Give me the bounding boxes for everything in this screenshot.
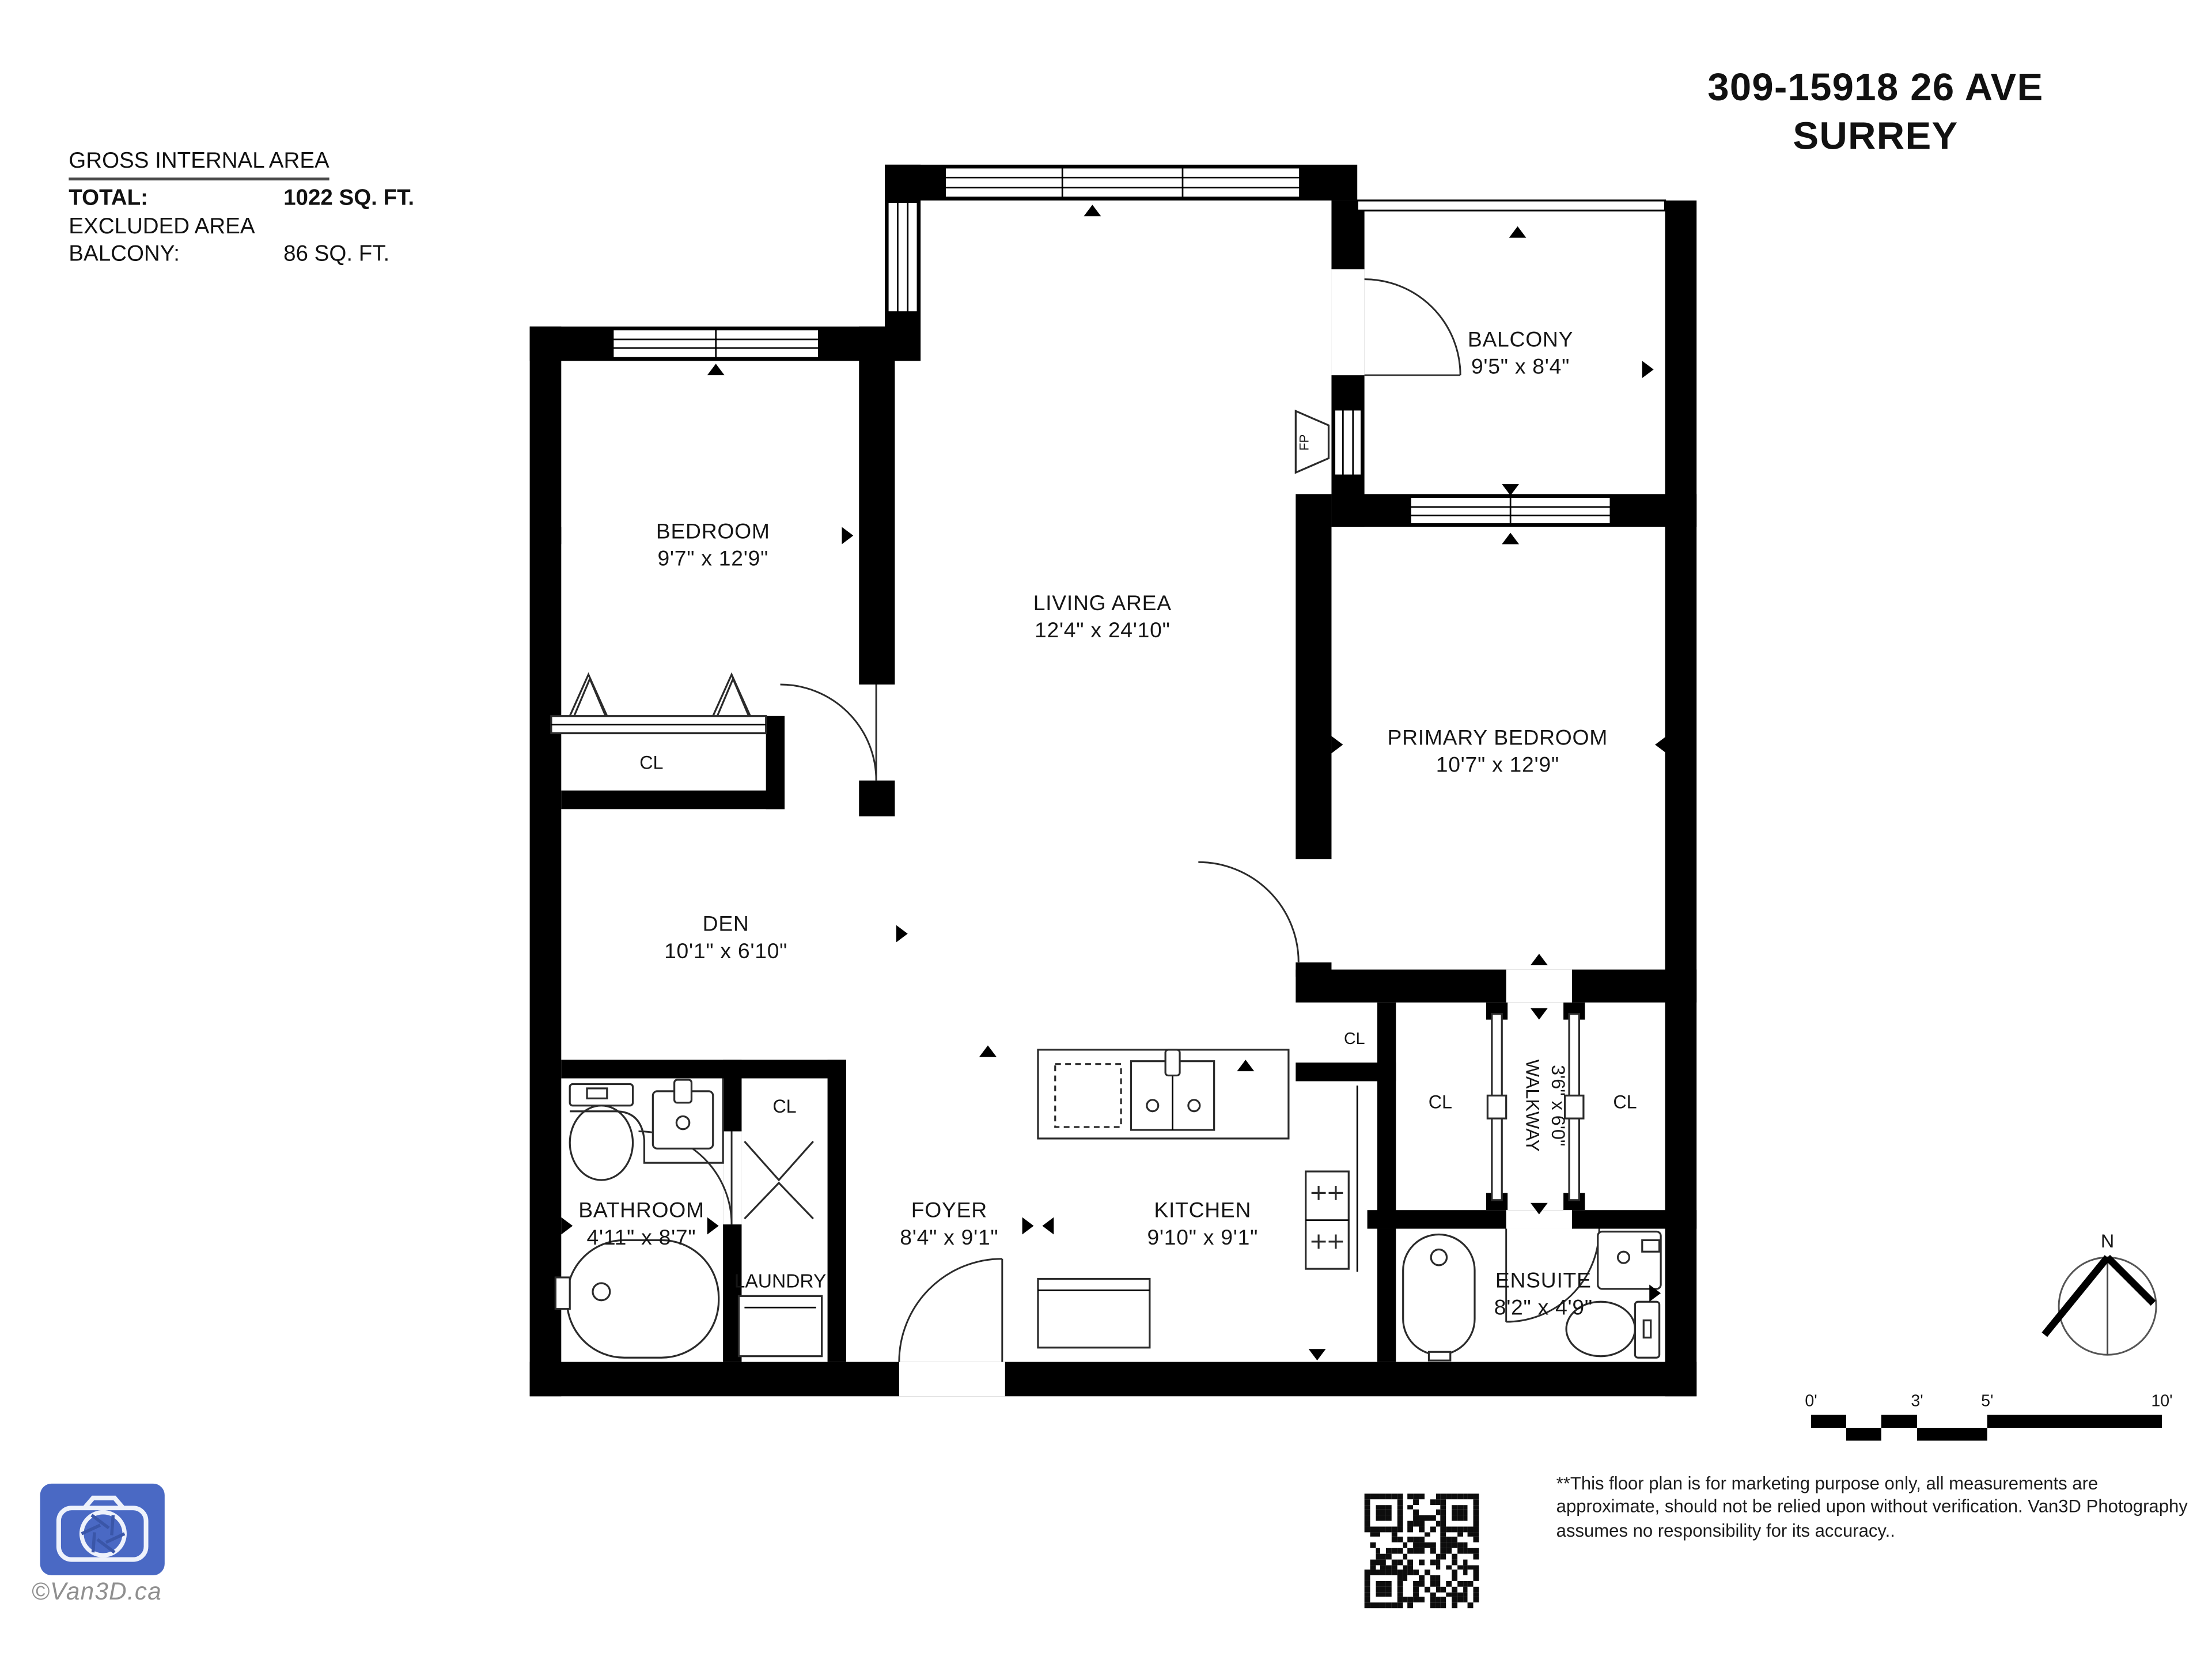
ensuite-sink — [1598, 1231, 1661, 1288]
closet-hangers — [570, 675, 750, 716]
label-living: LIVING AREA — [1033, 591, 1172, 615]
label-primary: PRIMARY BEDROOM — [1388, 725, 1608, 749]
qr-code — [1365, 1493, 1479, 1608]
area-row-balcony: BALCONY: 86 SQ. FT. — [69, 241, 414, 269]
area-summary: GROSS INTERNAL AREA TOTAL: 1022 SQ. FT. … — [69, 149, 414, 269]
area-heading: GROSS INTERNAL AREA — [69, 149, 329, 180]
scale-label-10: 10' — [2151, 1392, 2172, 1411]
label-closet-right: CL — [1613, 1092, 1637, 1113]
label-fireplace: FP — [1297, 434, 1312, 451]
area-row-total: TOTAL: 1022 SQ. FT. — [69, 185, 414, 213]
label-closet-foyer: CL — [772, 1096, 796, 1117]
page-title: 309-15918 26 AVE SURREY — [1632, 63, 2119, 160]
camera-icon — [40, 1484, 165, 1575]
scale-label-0: 0' — [1805, 1392, 1817, 1411]
compass-north-label: N — [2101, 1231, 2114, 1251]
label-closet-left: CL — [1429, 1092, 1452, 1113]
label-den-dims: 10'1" x 6'10" — [664, 939, 787, 963]
washer — [738, 1296, 821, 1356]
label-bathroom: BATHROOM — [578, 1198, 704, 1222]
area-balcony-value: 86 SQ. FT. — [283, 241, 389, 269]
watermark: ©Van3D.ca — [32, 1578, 162, 1607]
label-bedroom: BEDROOM — [656, 519, 770, 543]
scale-label-5: 5' — [1981, 1392, 1993, 1411]
label-kitchen-dims: 9'10" x 9'1" — [1147, 1225, 1258, 1249]
van3d-logo — [40, 1484, 165, 1575]
area-balcony-label: BALCONY: — [69, 241, 283, 269]
ensuite-tub — [1403, 1234, 1475, 1360]
label-bedroom-dims: 9'7" x 12'9" — [657, 546, 768, 570]
kitchen-island — [1038, 1050, 1289, 1139]
doors — [551, 279, 1599, 1362]
label-walkway: WALKWAY — [1522, 1060, 1543, 1152]
label-primary-dims: 10'7" x 12'9" — [1436, 753, 1559, 777]
address-line: 309-15918 26 AVE — [1632, 63, 2119, 112]
scale-label-3: 3' — [1911, 1392, 1923, 1411]
label-closet-small: CL — [1344, 1030, 1365, 1048]
label-laundry: LAUNDRY — [734, 1270, 827, 1292]
label-closet-bedroom: CL — [639, 753, 663, 773]
kitchen-stove — [1306, 1086, 1357, 1272]
floorplan-page: BEDROOM 9'7" x 12'9" LIVING AREA 12'4" x… — [0, 0, 2212, 1660]
label-bathroom-dims: 4'11" x 8'7" — [587, 1225, 696, 1249]
area-row-excluded: EXCLUDED AREA — [69, 213, 414, 240]
label-kitchen: KITCHEN — [1154, 1198, 1251, 1222]
area-excluded-label: EXCLUDED AREA — [69, 213, 283, 240]
disclaimer-text: **This floor plan is for marketing purpo… — [1556, 1472, 2192, 1542]
compass: N — [2044, 1231, 2156, 1355]
label-foyer: FOYER — [911, 1198, 987, 1222]
label-foyer-dims: 8'4" x 9'1" — [900, 1225, 998, 1249]
city-line: SURREY — [1632, 112, 2119, 161]
area-total-label: TOTAL: — [69, 185, 283, 213]
label-ensuite: ENSUITE — [1495, 1268, 1592, 1292]
label-balcony: BALCONY — [1468, 327, 1573, 351]
label-den: DEN — [703, 912, 749, 936]
kitchen-counter — [1038, 1279, 1150, 1347]
bathroom-tub — [555, 1240, 718, 1358]
label-ensuite-dims: 8'2" x 4'9" — [1494, 1295, 1593, 1319]
scale-bar: 0' 3' 5' 10' — [1805, 1392, 2172, 1441]
area-total-value: 1022 SQ. FT. — [283, 185, 414, 213]
label-living-dims: 12'4" x 24'10" — [1035, 618, 1171, 642]
bathroom-toilet — [570, 1084, 632, 1180]
label-walkway-dims: 3'6" x 6'0" — [1548, 1065, 1569, 1146]
label-balcony-dims: 9'5" x 8'4" — [1471, 354, 1570, 379]
